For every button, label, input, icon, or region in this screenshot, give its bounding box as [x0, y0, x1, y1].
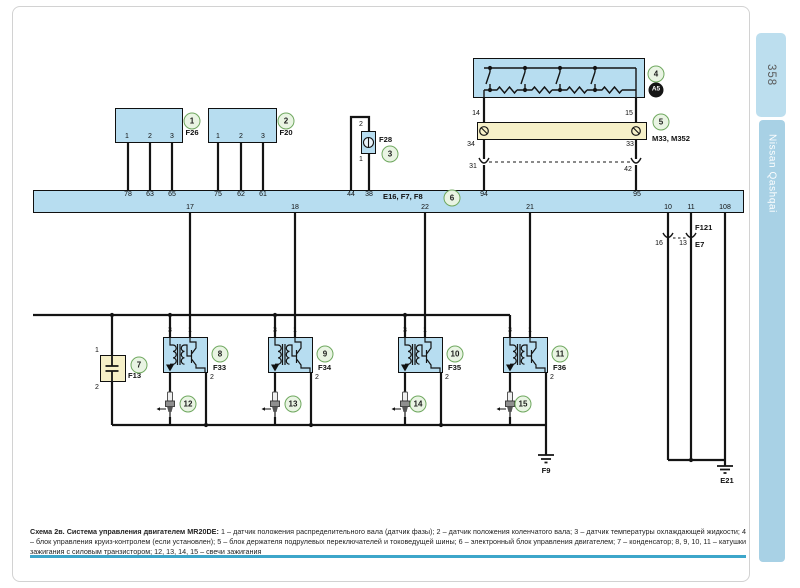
m33-label: M33, M352 [652, 135, 690, 143]
f121-label: F121 [695, 224, 712, 232]
inline-pin-31: 31 [469, 163, 477, 170]
ecu-pin-63: 63 [146, 191, 154, 198]
m33-pin-34: 34 [467, 141, 475, 148]
ecu-pin-62: 62 [237, 191, 245, 198]
brand-sidebar: Nissan Qashqai [759, 120, 785, 562]
ref-8: 8 [212, 346, 229, 363]
ignition-coil-block-f36 [503, 337, 548, 373]
f36-label: F36 [553, 364, 566, 372]
f34-pin-3: 3 [273, 327, 277, 334]
f35-pin-1: 1 [423, 327, 427, 334]
inline-pin-42: 42 [624, 166, 632, 173]
f26-pin-1: 1 [125, 133, 129, 140]
e21-label: E21 [720, 477, 734, 485]
ecu-pin-18: 18 [291, 204, 299, 211]
ref-12: 12 [180, 396, 197, 413]
f33-pin-2: 2 [210, 374, 214, 381]
manual-page: 7863657562614438949517182221101110812312… [0, 0, 800, 588]
caption-separator-line [30, 555, 746, 558]
capacitor-block-f13 [100, 355, 126, 382]
ref-13: 13 [285, 396, 302, 413]
e7-pin-13: 13 [679, 240, 687, 247]
e7-label: E7 [695, 241, 704, 249]
ecu-pin-65: 65 [168, 191, 176, 198]
f35-pin-3: 3 [403, 327, 407, 334]
ref-14: 14 [410, 396, 427, 413]
f20-pin-3: 3 [261, 133, 265, 140]
steering-switch-bus-block-m33 [477, 122, 647, 140]
ecu-pin-78: 78 [124, 191, 132, 198]
ecu-pin-38: 38 [365, 191, 373, 198]
f28-label: F28 [379, 136, 392, 144]
ignition-coil-block-f33 [163, 337, 208, 373]
ignition-coil-block-f34 [268, 337, 313, 373]
ecu-label: E16, F7, F8 [383, 193, 423, 201]
caption-title: Схема 2в. Система управления двигателем … [30, 527, 219, 536]
f20-label: F20 [279, 129, 292, 137]
f34-label: F34 [318, 364, 331, 372]
f20-pin-1: 1 [216, 133, 220, 140]
ref-10: 10 [447, 346, 464, 363]
f33-pin-3: 3 [168, 327, 172, 334]
ecu-pin-11: 11 [687, 204, 694, 211]
ref-7: 7 [131, 357, 148, 374]
f13-pin-1: 1 [95, 347, 99, 354]
ignition-coil-block-f35 [398, 337, 443, 373]
ref-6: 6 [444, 190, 461, 207]
page-number-tab: 358 [756, 33, 786, 117]
e7-pin-16: 16 [655, 240, 663, 247]
f33-pin-1: 1 [188, 327, 192, 334]
coolant-temp-sensor-block-f28 [361, 131, 376, 154]
f20-pin-2: 2 [239, 133, 243, 140]
f33-label: F33 [213, 364, 226, 372]
ref-15: 15 [515, 396, 532, 413]
f34-pin-2: 2 [315, 374, 319, 381]
ref-9: 9 [317, 346, 334, 363]
cruise-control-block [473, 58, 645, 98]
page-number: 358 [765, 64, 777, 86]
ref-2: 2 [278, 113, 295, 130]
ecu-pin-94: 94 [480, 191, 488, 198]
ecu-pin-95: 95 [633, 191, 641, 198]
ref-4: 4 [648, 66, 665, 83]
m33-pin-15: 15 [625, 110, 633, 117]
ref-5: 5 [653, 114, 670, 131]
brand-name: Nissan Qashqai [767, 120, 778, 562]
f36-pin-2: 2 [550, 374, 554, 381]
f36-pin-1: 1 [528, 327, 532, 334]
f35-label: F35 [448, 364, 461, 372]
ecu-pin-10: 10 [664, 204, 672, 211]
f26-pin-3: 3 [170, 133, 174, 140]
ref-1: 1 [184, 113, 201, 130]
m33-pin-33: 33 [626, 141, 634, 148]
ecu-pin-75: 75 [214, 191, 222, 198]
f28-pin-2: 2 [359, 121, 363, 128]
ref-11: 11 [552, 346, 569, 363]
ecu-pin-22: 22 [421, 204, 429, 211]
f36-pin-3: 3 [508, 327, 512, 334]
m33-pin-14: 14 [472, 110, 480, 117]
ecu-pin-17: 17 [186, 204, 194, 211]
ecu-pin-108: 108 [719, 204, 731, 211]
f13-pin-2: 2 [95, 384, 99, 391]
f35-pin-2: 2 [445, 374, 449, 381]
ecu-pin-61: 61 [259, 191, 267, 198]
ref-a5: A5 [649, 83, 664, 98]
f26-label: F26 [185, 129, 198, 137]
ecu-pin-44: 44 [347, 191, 355, 198]
caption: Схема 2в. Система управления двигателем … [30, 527, 746, 558]
f9-label: F9 [542, 467, 551, 475]
f28-pin-1: 1 [359, 156, 363, 163]
f34-pin-1: 1 [293, 327, 297, 334]
f26-pin-2: 2 [148, 133, 152, 140]
ecu-pin-21: 21 [526, 204, 534, 211]
ref-3: 3 [382, 146, 399, 163]
